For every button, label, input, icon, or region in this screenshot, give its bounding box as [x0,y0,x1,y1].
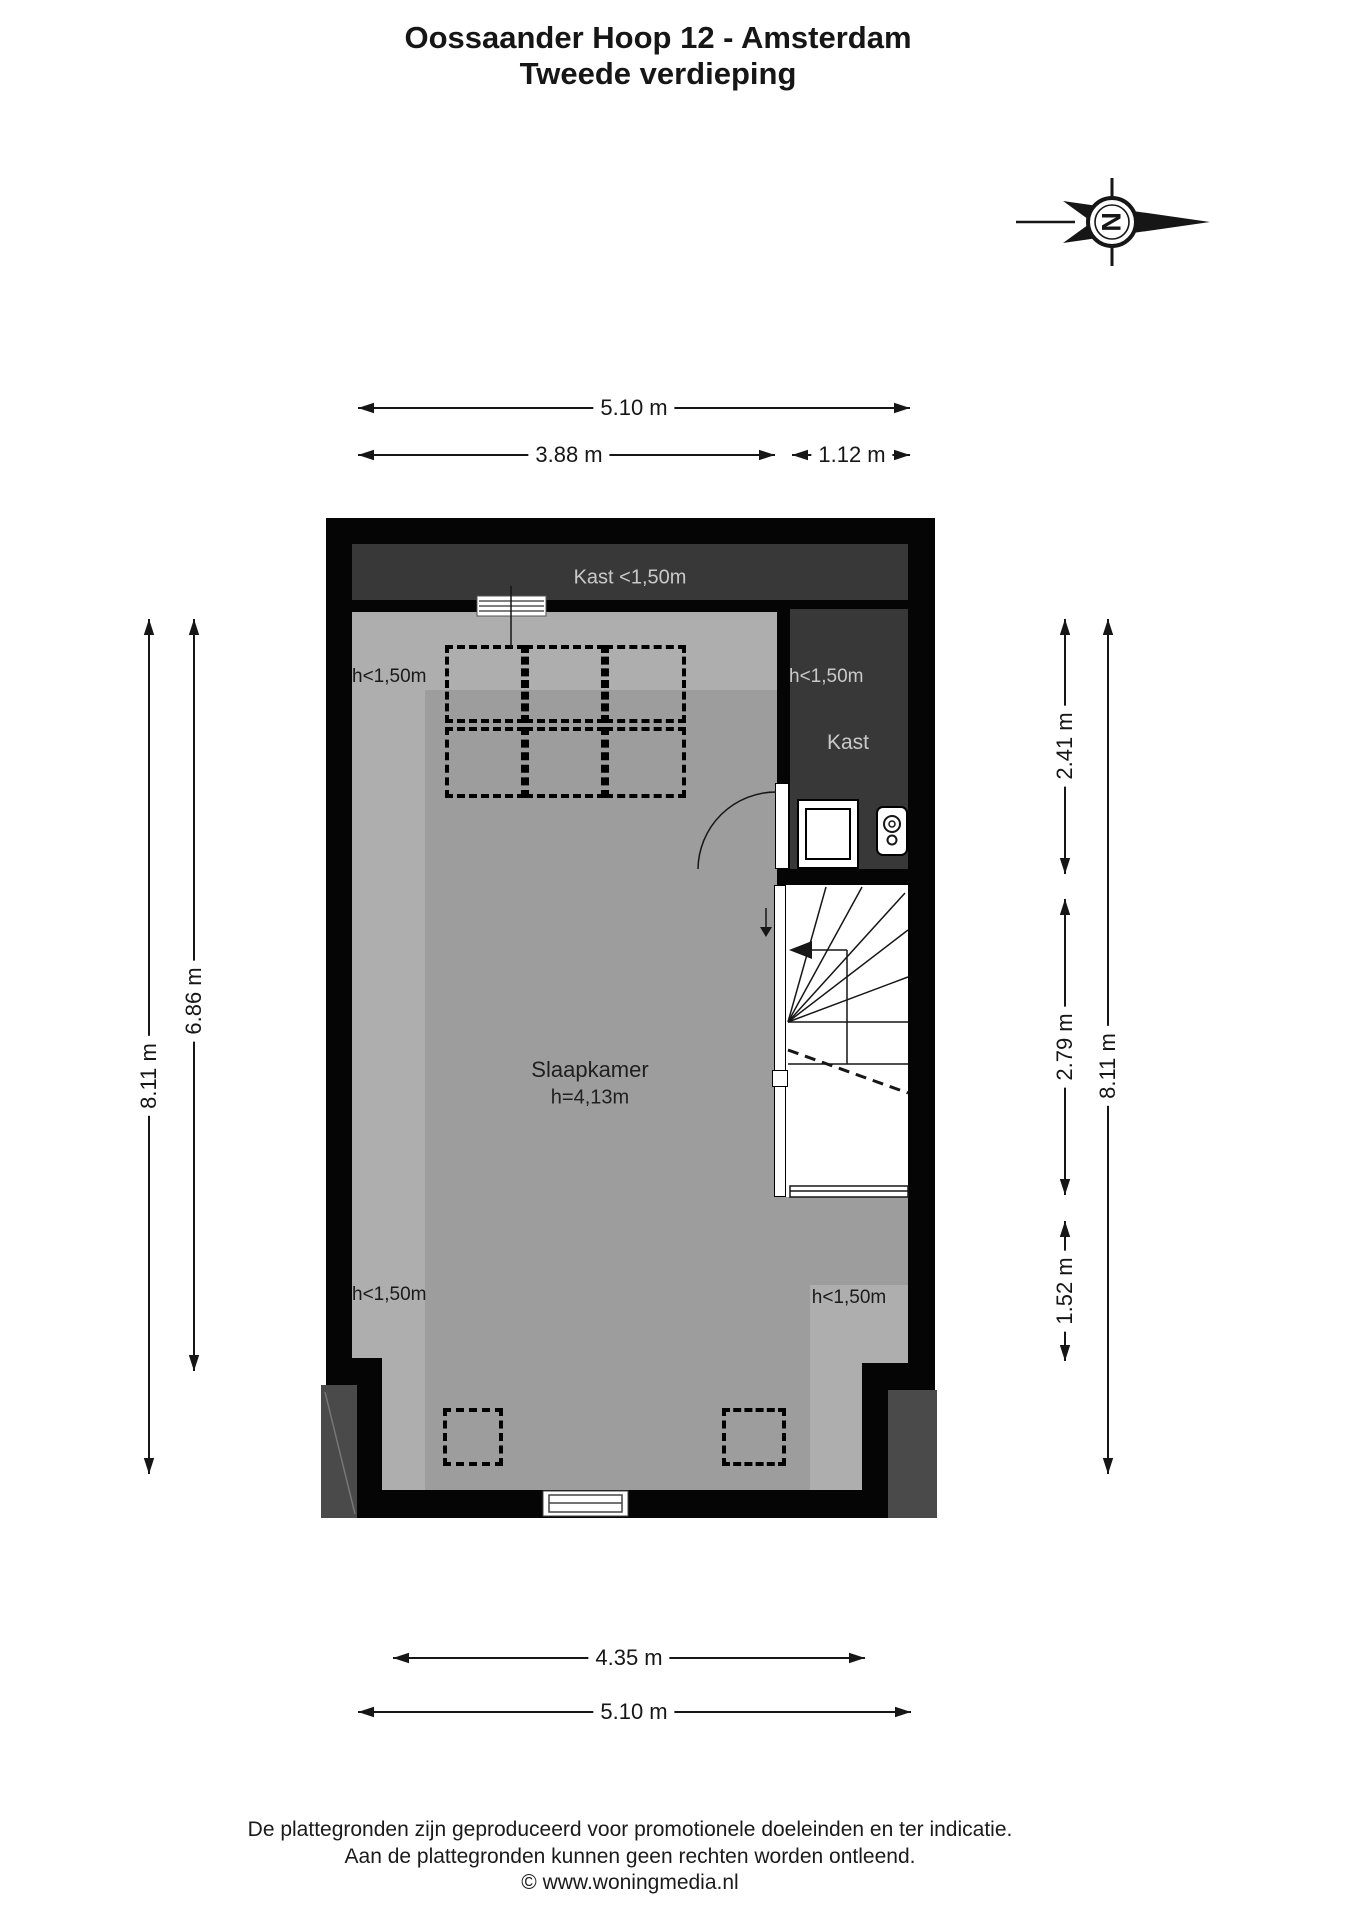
footer-disclaimer-line2: Aan de plattegronden kunnen geen rechten… [0,1845,1260,1869]
dim-left-inner: 6.86 m [181,960,207,1041]
low-height-label-top-left: h<1,50m [352,666,426,688]
floorplan-page: Oossaander Hoop 12 - Amsterdam Tweede ve… [0,0,1358,1920]
low-height-label-bottom-left: h<1,50m [352,1284,426,1306]
loft-hatch-icon [477,586,546,648]
dim-right-2: 2.79 m [1052,1006,1078,1087]
dim-left-total: 8.11 m [136,1036,162,1116]
north-arrow-icon: N [1016,178,1210,266]
dim-bottom-total: 5.10 m [593,1699,674,1725]
dim-top-left: 3.88 m [528,442,609,468]
window-icon [543,1491,628,1516]
bedroom-label: Slaapkamer [531,1057,648,1083]
compass-letter: N [1096,212,1126,232]
dim-right-1: 2.41 m [1052,705,1078,786]
exterior-roof-edge-line [325,1392,355,1514]
dim-right-total: 8.11 m [1095,1026,1121,1106]
staircase-treads [788,887,908,1197]
footer-copyright: © www.woningmedia.nl [0,1871,1260,1895]
low-height-label-bottom-right: h<1,50m [812,1287,886,1309]
top-closet-label: Kast <1,50m [574,567,687,590]
closet-label: Kast [827,731,869,755]
footer-disclaimer-line1: De plattegronden zijn geproduceerd voor … [0,1818,1260,1842]
stair-direction-arrow [760,908,847,959]
dim-top-right: 1.12 m [811,442,892,468]
dim-bottom-inner: 4.35 m [588,1645,669,1671]
bedroom-height-label: h=4,13m [551,1087,629,1110]
boiler-detail-icon [884,816,900,845]
dim-right-3: 1.52 m [1052,1250,1078,1331]
low-height-label-closet: h<1,50m [789,666,863,688]
door-swing-arc [698,792,776,869]
dim-top-total: 5.10 m [593,395,674,421]
